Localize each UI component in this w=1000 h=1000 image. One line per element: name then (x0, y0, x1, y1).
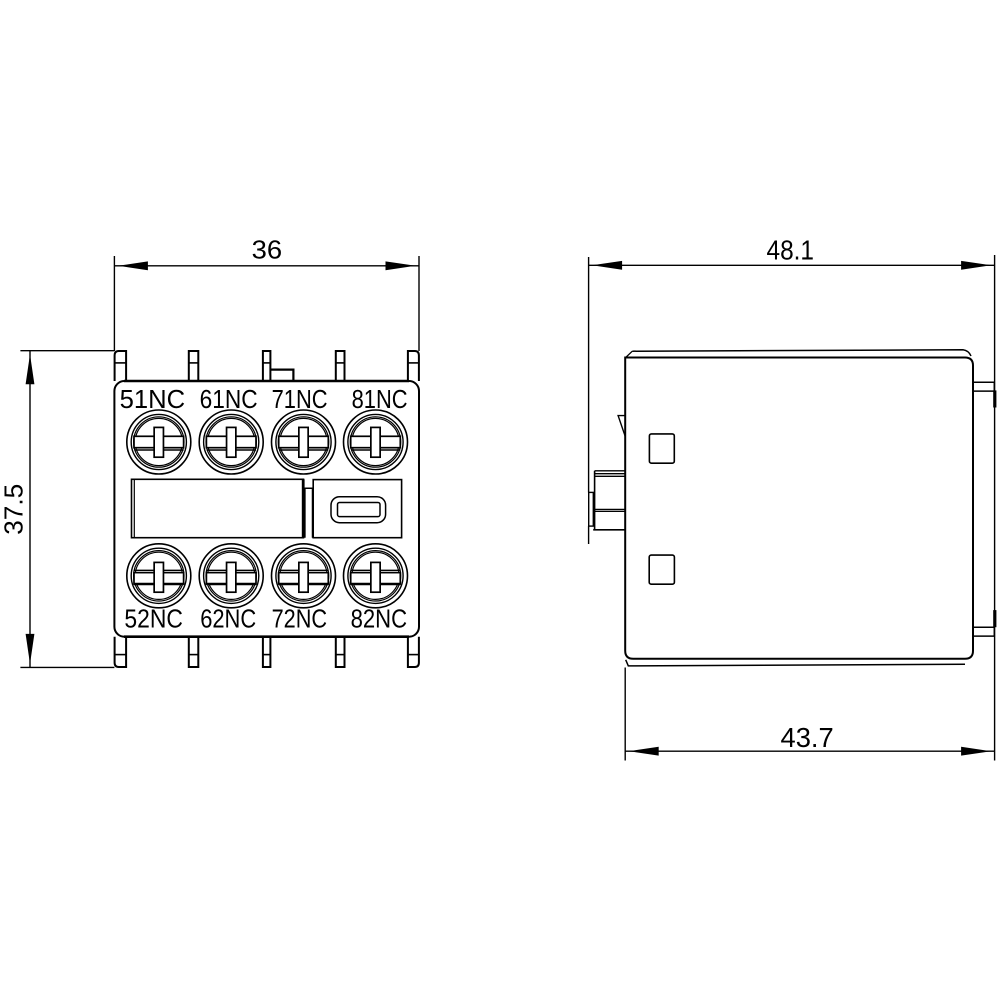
svg-text:37.5: 37.5 (0, 484, 29, 535)
svg-text:51NC: 51NC (120, 384, 186, 414)
svg-text:36: 36 (252, 234, 283, 264)
svg-text:43.7: 43.7 (781, 722, 834, 753)
svg-text:48.1: 48.1 (767, 234, 815, 265)
